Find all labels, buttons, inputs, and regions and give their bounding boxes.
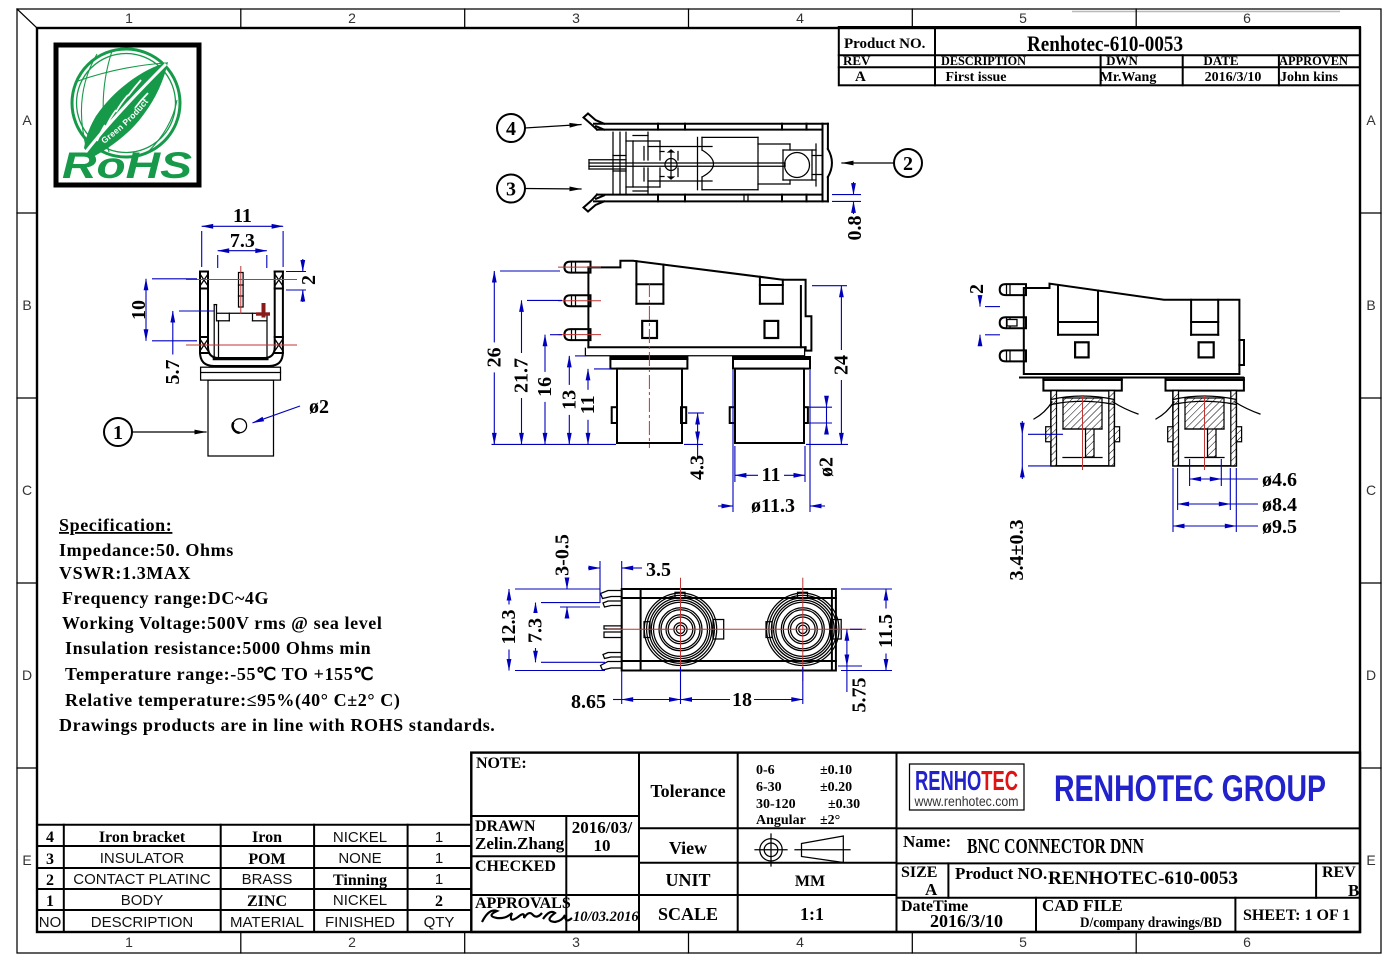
svg-text:D/company drawings/BD: D/company drawings/BD bbox=[1080, 915, 1222, 931]
svg-text:Angular: Angular bbox=[756, 813, 806, 828]
svg-text:RENHOTEC-610-0053: RENHOTEC-610-0053 bbox=[1048, 868, 1238, 889]
svg-text:3.5: 3.5 bbox=[646, 559, 671, 581]
svg-text:D: D bbox=[1366, 667, 1376, 683]
svg-text:SHEET: 1 OF 1: SHEET: 1 OF 1 bbox=[1243, 907, 1350, 924]
svg-text:D: D bbox=[22, 667, 32, 683]
svg-text:Temperature range:-55℃ TO +155: Temperature range:-55℃ TO +155℃ bbox=[65, 664, 374, 684]
svg-text:±0.30: ±0.30 bbox=[828, 797, 860, 812]
svg-text:2016/03/: 2016/03/ bbox=[572, 818, 633, 837]
svg-text:ø9.5: ø9.5 bbox=[1262, 516, 1297, 538]
svg-text:C: C bbox=[22, 482, 32, 498]
svg-text:Relative temperature:≤95%(40°: Relative temperature:≤95%(40° C±2° C) bbox=[65, 690, 400, 711]
svg-text:1: 1 bbox=[125, 10, 133, 26]
svg-text:24: 24 bbox=[830, 355, 852, 375]
svg-text:11: 11 bbox=[762, 464, 781, 486]
svg-text:B: B bbox=[22, 297, 31, 313]
svg-text:Frequency range:DC~4G: Frequency range:DC~4G bbox=[62, 588, 269, 608]
svg-text:Name:: Name: bbox=[903, 832, 951, 851]
svg-text:0-6: 0-6 bbox=[756, 763, 775, 778]
svg-text:E: E bbox=[22, 852, 31, 868]
svg-text:UNIT: UNIT bbox=[665, 870, 710, 890]
svg-text:Iron bracket: Iron bracket bbox=[99, 829, 186, 846]
svg-text:2: 2 bbox=[348, 10, 356, 26]
svg-text:10: 10 bbox=[128, 300, 150, 320]
svg-text:3: 3 bbox=[572, 934, 580, 950]
svg-text:Renhotec-610-0053: Renhotec-610-0053 bbox=[1027, 31, 1183, 56]
svg-text:APPROVALS: APPROVALS bbox=[475, 895, 571, 912]
svg-text:RENHOTEC GROUP: RENHOTEC GROUP bbox=[1054, 768, 1326, 809]
svg-text:Specification:: Specification: bbox=[59, 515, 172, 535]
svg-text:21.7: 21.7 bbox=[511, 358, 533, 393]
svg-text:8.65: 8.65 bbox=[571, 691, 606, 713]
svg-text:DRAWN: DRAWN bbox=[475, 818, 536, 835]
svg-text:3: 3 bbox=[506, 179, 516, 201]
svg-text:FINISHED: FINISHED bbox=[325, 914, 395, 931]
svg-text:REV: REV bbox=[1322, 864, 1356, 881]
svg-text:4.3: 4.3 bbox=[687, 455, 709, 480]
svg-text:INSULATOR: INSULATOR bbox=[100, 850, 185, 867]
svg-text:ø8.4: ø8.4 bbox=[1262, 494, 1297, 516]
svg-text:A: A bbox=[855, 69, 866, 85]
svg-text:0.8: 0.8 bbox=[844, 216, 866, 241]
svg-text:6-30: 6-30 bbox=[756, 780, 782, 795]
svg-text:5: 5 bbox=[1019, 10, 1027, 26]
svg-text:REV: REV bbox=[843, 53, 871, 68]
svg-text:A: A bbox=[925, 880, 938, 899]
svg-text:±0.20: ±0.20 bbox=[820, 780, 852, 795]
svg-text:1: 1 bbox=[113, 422, 123, 444]
svg-text:11: 11 bbox=[233, 205, 252, 227]
svg-text:Working Voltage:500V rms @ sea: Working Voltage:500V rms @ sea level bbox=[62, 613, 383, 633]
svg-text:1: 1 bbox=[435, 850, 443, 867]
svg-text:4: 4 bbox=[796, 10, 804, 26]
svg-text:MATERIAL: MATERIAL bbox=[230, 914, 304, 931]
svg-text:www.renhotec.com: www.renhotec.com bbox=[914, 794, 1019, 809]
svg-text:2: 2 bbox=[903, 153, 913, 175]
svg-text:ø4.6: ø4.6 bbox=[1262, 469, 1297, 491]
svg-text:1:1: 1:1 bbox=[800, 904, 824, 924]
svg-text:BNC CONNECTOR DNN: BNC CONNECTOR DNN bbox=[967, 834, 1144, 858]
svg-text:±0.10: ±0.10 bbox=[820, 763, 852, 778]
svg-text:12.3: 12.3 bbox=[498, 610, 520, 645]
svg-text:First issue: First issue bbox=[945, 70, 1006, 85]
svg-text:3-0.5: 3-0.5 bbox=[552, 534, 574, 576]
svg-text:Zelin.Zhang: Zelin.Zhang bbox=[475, 834, 565, 853]
svg-text:NONE: NONE bbox=[338, 850, 381, 867]
svg-text:Tinning: Tinning bbox=[333, 872, 387, 889]
svg-text:6: 6 bbox=[1243, 934, 1251, 950]
svg-text:ø2: ø2 bbox=[309, 396, 329, 418]
svg-text:C: C bbox=[1366, 482, 1376, 498]
svg-text:7.3: 7.3 bbox=[525, 618, 547, 643]
svg-text:5.7: 5.7 bbox=[162, 360, 184, 385]
svg-text:5: 5 bbox=[1019, 934, 1027, 950]
svg-text:10/03.2016: 10/03.2016 bbox=[573, 909, 639, 925]
svg-text:3: 3 bbox=[572, 10, 580, 26]
svg-text:11: 11 bbox=[577, 395, 599, 414]
svg-text:4: 4 bbox=[46, 829, 54, 846]
svg-text:Mr.Wang: Mr.Wang bbox=[1100, 70, 1157, 85]
svg-text:SCALE: SCALE bbox=[658, 904, 718, 924]
svg-text:3.4±0.3: 3.4±0.3 bbox=[1006, 520, 1028, 581]
svg-text:±2°: ±2° bbox=[820, 813, 840, 828]
svg-text:B: B bbox=[1366, 297, 1375, 313]
svg-text:A: A bbox=[22, 112, 32, 128]
svg-text:B: B bbox=[1348, 881, 1359, 900]
svg-text:11.5: 11.5 bbox=[875, 614, 897, 648]
svg-text:26: 26 bbox=[483, 347, 505, 367]
svg-text:1: 1 bbox=[435, 829, 443, 846]
svg-text:2: 2 bbox=[348, 934, 356, 950]
svg-text:APPROVEN: APPROVEN bbox=[1279, 53, 1349, 68]
svg-text:Drawings products are in line: Drawings products are in line with ROHS … bbox=[59, 715, 495, 735]
svg-text:DATE: DATE bbox=[1203, 53, 1238, 68]
svg-text:2: 2 bbox=[966, 284, 988, 294]
svg-text:CAD FILE: CAD FILE bbox=[1042, 896, 1123, 915]
svg-text:SIZE: SIZE bbox=[901, 864, 937, 881]
svg-text:NICKEL: NICKEL bbox=[333, 829, 387, 846]
svg-text:CHECKED: CHECKED bbox=[475, 858, 556, 875]
svg-text:Product NO.: Product NO. bbox=[955, 864, 1047, 883]
svg-text:John kins: John kins bbox=[1280, 70, 1339, 85]
svg-text:DESCRIPTION: DESCRIPTION bbox=[941, 53, 1027, 68]
svg-text:2: 2 bbox=[46, 872, 54, 889]
svg-text:BRASS: BRASS bbox=[242, 871, 293, 888]
svg-text:ø11.3: ø11.3 bbox=[751, 495, 795, 517]
svg-text:5.75: 5.75 bbox=[849, 678, 871, 713]
svg-text:1: 1 bbox=[435, 871, 443, 888]
svg-text:Impedance:50. Ohms: Impedance:50. Ohms bbox=[59, 540, 234, 560]
svg-text:MM: MM bbox=[795, 873, 825, 890]
svg-text:16: 16 bbox=[534, 377, 556, 397]
svg-text:ø2: ø2 bbox=[816, 457, 838, 477]
svg-text:2: 2 bbox=[435, 893, 443, 910]
svg-text:1: 1 bbox=[125, 934, 133, 950]
svg-text:30-120: 30-120 bbox=[756, 797, 796, 812]
svg-text:POM: POM bbox=[248, 851, 285, 868]
svg-text:NOTE:: NOTE: bbox=[476, 755, 527, 772]
svg-text:Product NO.: Product NO. bbox=[844, 36, 926, 52]
svg-text:7.3: 7.3 bbox=[230, 230, 255, 252]
svg-text:DESCRIPTION: DESCRIPTION bbox=[91, 914, 194, 931]
svg-text:RENHOTEC: RENHOTEC bbox=[915, 765, 1018, 796]
svg-text:Insulation resistance:5000 Ohm: Insulation resistance:5000 Ohms min bbox=[65, 638, 371, 658]
svg-text:Iron: Iron bbox=[252, 829, 282, 846]
svg-text:CONTACT PLATINC: CONTACT PLATINC bbox=[73, 871, 211, 888]
svg-text:4: 4 bbox=[796, 934, 804, 950]
svg-text:NO: NO bbox=[39, 914, 62, 931]
svg-text:4: 4 bbox=[506, 118, 516, 140]
svg-text:2: 2 bbox=[298, 275, 320, 285]
svg-text:Tolerance: Tolerance bbox=[650, 781, 725, 801]
svg-text:NICKEL: NICKEL bbox=[333, 892, 387, 909]
svg-text:QTY: QTY bbox=[424, 914, 455, 931]
svg-text:RoHS: RoHS bbox=[62, 145, 192, 186]
svg-text:2016/3/10: 2016/3/10 bbox=[930, 911, 1003, 931]
svg-text:18: 18 bbox=[732, 689, 752, 711]
svg-text:6: 6 bbox=[1243, 10, 1251, 26]
svg-text:DWN: DWN bbox=[1106, 53, 1138, 68]
svg-text:BODY: BODY bbox=[121, 892, 164, 909]
svg-text:3: 3 bbox=[46, 851, 54, 868]
svg-text:View: View bbox=[669, 838, 707, 858]
svg-text:10: 10 bbox=[594, 836, 611, 855]
svg-text:A: A bbox=[1366, 112, 1376, 128]
svg-text:VSWR:1.3MAX: VSWR:1.3MAX bbox=[59, 563, 191, 583]
svg-text:E: E bbox=[1366, 852, 1375, 868]
svg-text:ZINC: ZINC bbox=[247, 893, 287, 910]
svg-text:2016/3/10: 2016/3/10 bbox=[1205, 70, 1262, 85]
svg-text:1: 1 bbox=[46, 893, 54, 910]
